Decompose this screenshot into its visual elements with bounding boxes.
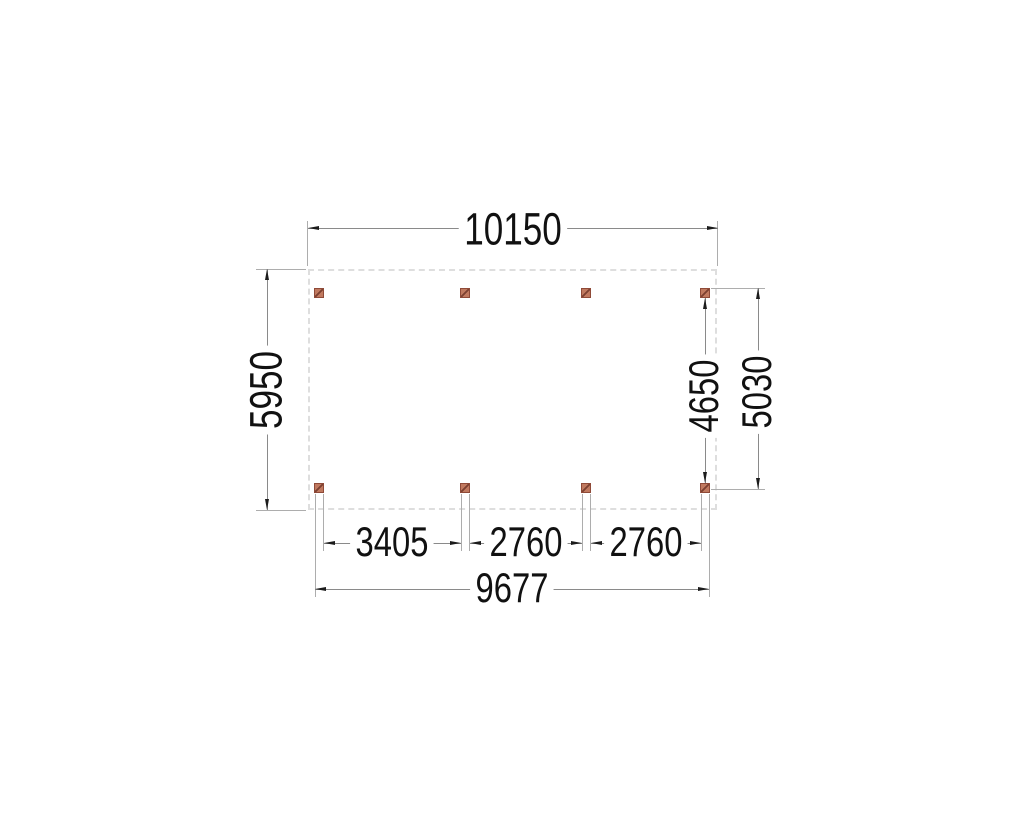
post-bottom-1 — [314, 483, 324, 493]
arrowhead-left-icon — [470, 541, 481, 545]
dim-overall-width: 10150 — [459, 206, 568, 253]
arrowhead-left-icon — [324, 541, 335, 545]
dim-bay-right: 2760 — [604, 520, 688, 564]
canopy-outline — [308, 269, 717, 510]
post-top-1 — [314, 288, 324, 298]
arrowhead-right-icon — [707, 226, 718, 230]
dim-bay-middle: 2760 — [484, 520, 568, 564]
post-bottom-2 — [460, 483, 470, 493]
extension-line — [461, 494, 462, 551]
arrowhead-right-icon — [698, 587, 709, 591]
dim-right-inner-span: 4650 — [682, 354, 726, 438]
arrowhead-down-icon — [265, 499, 269, 510]
post-top-3 — [581, 288, 591, 298]
extension-line — [582, 494, 583, 551]
post-bottom-4 — [700, 483, 710, 493]
arrowhead-left-icon — [315, 587, 326, 591]
arrowhead-down-icon — [756, 478, 760, 489]
arrowhead-down-icon — [703, 472, 707, 483]
post-top-2 — [460, 288, 470, 298]
extension-line — [711, 489, 765, 490]
extension-line — [701, 494, 702, 551]
arrowhead-up-icon — [703, 298, 707, 309]
arrowhead-right-icon — [690, 541, 701, 545]
arrowhead-right-icon — [450, 541, 461, 545]
arrowhead-up-icon — [265, 269, 269, 280]
extension-line — [256, 269, 306, 270]
extension-line — [709, 494, 710, 597]
arrowhead-right-icon — [571, 541, 582, 545]
dim-bay-left: 3405 — [350, 520, 434, 564]
extension-line — [256, 510, 306, 511]
arrowhead-left-icon — [591, 541, 602, 545]
dim-right-outer-span: 5030 — [735, 350, 779, 434]
extension-line — [315, 494, 316, 597]
floor-plan-drawing: 10150 5950 4650 5030 3405 2760 2760 9677 — [0, 0, 1024, 819]
dim-overall-depth: 5950 — [243, 345, 290, 434]
post-top-4 — [700, 288, 710, 298]
post-bottom-3 — [581, 483, 591, 493]
arrowhead-up-icon — [756, 288, 760, 299]
arrowhead-left-icon — [308, 226, 319, 230]
dim-posts-total-span: 9677 — [470, 566, 554, 610]
